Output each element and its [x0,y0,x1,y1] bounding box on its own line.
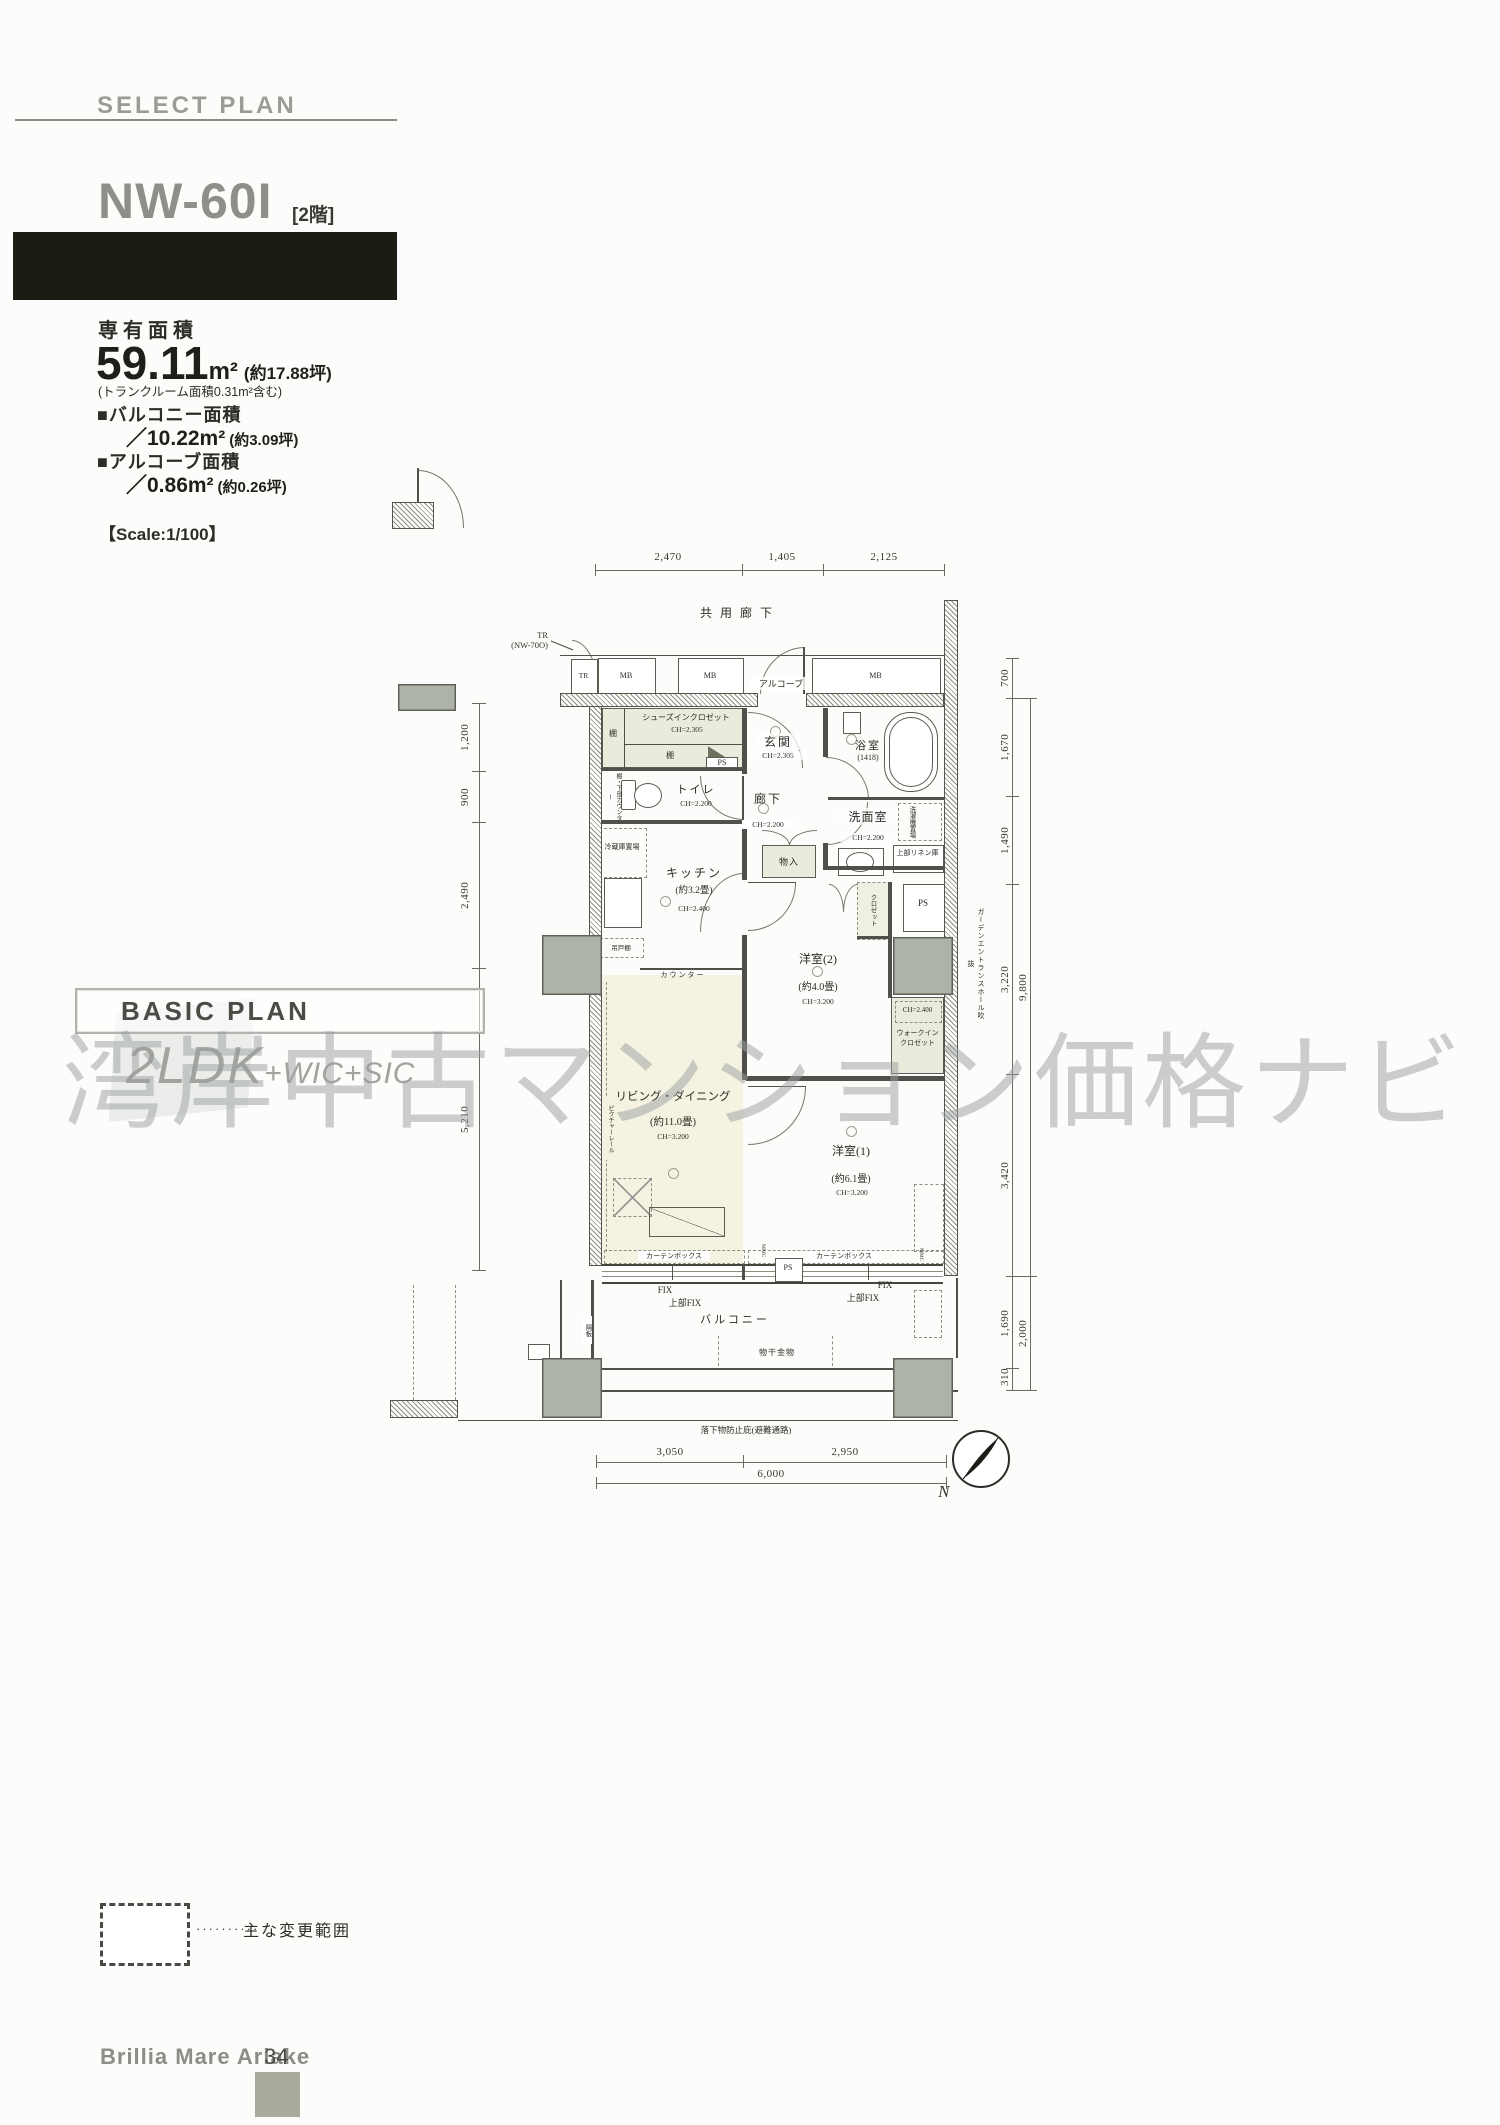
dim-right-1490: 1,490 [999,817,1011,863]
dim-top-3: 2,125 [849,551,919,563]
dim-tick-left-5 [472,1270,486,1271]
dim-bottom-1: 3,050 [635,1446,705,1458]
monohoshi-label: 物干金物 [748,1347,806,1358]
canopy-label: 落下物防止庇(避難通路) [688,1424,804,1436]
west2-label: 洋室(2) [786,950,850,967]
pillar-left [542,935,602,995]
hall-ch: CH=2.200 [742,820,794,829]
closet-bifold-2 [843,884,858,912]
dim-right-1670: 1,670 [999,724,1011,770]
dim-line-top [595,570,945,571]
wall-sic-toilet [602,768,743,771]
escape-hatch [914,1290,942,1338]
pillar-right [893,937,953,995]
toilet-label: トイレ [666,781,726,797]
alcove-tsubo: (約0.26坪) [218,479,287,496]
dim-top-2: 1,405 [747,551,817,563]
dim-line-bottom-2 [596,1483,947,1484]
wash-ch: CH=2.200 [840,833,896,842]
dim-tick-bottom-4 [596,1477,597,1489]
neighbor-wall-stub [392,502,434,529]
alcove-number: ／0.86m² [126,474,214,497]
balcony-rail-inner [562,1368,893,1370]
wall-top-left [560,693,758,707]
kitchen-label: キッチン [652,864,736,881]
wall-v-bath-1 [823,708,828,757]
ps-label: PS [903,898,943,908]
wall-toilet-kitchen [602,820,743,824]
west2-door-leaf [748,882,796,883]
west1-ch: CH=3.200 [822,1188,882,1197]
wall-v-bath-2 [823,843,828,867]
legend-label: 主な変更範囲 [243,1917,351,1941]
floor-tag: [2階] [292,200,334,227]
wall-v-w2-top [742,862,747,880]
stove-counter [604,878,642,928]
dim-line-bottom-1 [596,1462,947,1463]
trunk-room-note: (トランクルーム面積0.31m²含む) [98,381,282,400]
closet-bifold-1 [829,884,844,912]
legend-change-box [100,1903,190,1966]
evac-dash-1 [413,1285,414,1400]
west2-size: (約4.0畳) [784,978,852,993]
dim-tick-top-2 [742,564,743,576]
pillar-bottom-left [542,1358,602,1418]
washer-label: 洗濯機置場 [906,805,916,839]
wall-closet-bottom [857,936,892,939]
fix-upper-label-1: 上部FIX [658,1296,712,1309]
dim-tick-left-1 [472,703,486,704]
sic-ch: CH=2.305 [652,725,722,734]
kicker-underline [15,119,397,121]
evac-dash-2 [455,1285,456,1400]
sic-shelf-bottom: 棚 [650,750,690,761]
west1-desk-space [914,1184,944,1252]
bath-counter [843,712,861,734]
lamp-west2 [812,966,823,977]
dim-tick-bottom-1 [596,1455,597,1468]
balcony-number: ／10.22m² [126,427,225,450]
balcony-label: バルコニー [700,1311,770,1327]
monoire-label: 物入 [762,855,816,868]
bath-size: (1418) [848,753,888,762]
balcony-right-edge [956,1278,958,1358]
mmc-label-1: MMC [760,1242,766,1260]
site-watermark: 湾岸中古マンション価格ナビ [62,998,1498,1149]
dim-tick-bottom-3 [946,1455,947,1468]
dim-left-3: 2,490 [459,872,471,918]
wash-label: 洗面室 [838,808,898,825]
dim-tick-right-6 [1006,1276,1037,1277]
dim-bottom-2: 2,950 [810,1446,880,1458]
dim-tick-top-1 [595,564,596,576]
dim-line-left [479,703,480,1270]
sic-divider-h [624,744,743,745]
kitchen-ch: CH=2.400 [654,904,734,913]
dim-bottom-3: 6,000 [736,1468,806,1480]
unit-name: NW-60I [98,172,272,230]
dim-tick-right-3 [1006,796,1019,797]
north-label: N [934,1482,954,1502]
wall-v-entry-1 [742,708,747,774]
sic-shelf-left: 棚 [603,728,623,739]
dim-right-2000: 2,000 [1017,1310,1029,1356]
monohoshi-mark-1 [718,1336,719,1366]
bath-label: 浴室 [846,737,890,753]
dim-right-3220: 3,220 [999,956,1011,1002]
window-mullion-3 [868,1264,869,1280]
wall-closet-right [888,882,892,998]
meter-box-2-label: MB [678,671,742,680]
meter-box-3-label: MB [812,671,939,680]
fix-upper-label-2: 上部FIX [836,1291,890,1304]
wall-wash-bottom [823,866,944,870]
west2-door-arc [748,883,796,931]
brochure-page: { "header": { "kicker": "SELECT PLAN", "… [0,0,1500,2125]
scale-note: 【Scale:1/100】 [99,520,226,545]
dim-right-310: 310 [999,1360,1011,1394]
curtain-label-west1: カーテンボックス [808,1251,880,1261]
closet-label: クロゼット [867,887,877,933]
curtain-label-living: カーテンボックス [638,1251,710,1261]
north-arrow-icon [954,1432,1008,1486]
monoire-door-2 [789,830,817,846]
common-corridor-label: 共用廊下 [660,604,820,621]
trunk-ref-line1: TR [537,630,548,640]
dim-tick-right-4 [1006,884,1019,885]
trunk-room-label: TR [571,671,596,680]
dim-left-2: 900 [459,778,471,816]
neighbor-pillar [398,684,456,711]
mb-row-topline [560,655,944,656]
monohoshi-mark-2 [832,1336,833,1366]
trunk-ref-line2: (NW-70O) [511,640,548,650]
balcony-tsubo: (約3.09坪) [229,432,298,449]
pillar-bottom-right [893,1358,953,1418]
north-compass-icon [952,1430,1010,1488]
sic-label: シューズインクロゼット [630,712,742,723]
hanging-label: 吊戸棚 [602,942,640,952]
linen-label: 上部リネン庫 [894,848,941,858]
dim-right-700: 700 [999,660,1011,696]
dim-tick-left-2 [472,771,486,772]
black-bar [13,232,397,300]
tv-space [613,1178,652,1217]
wall-bath-wash [828,797,944,800]
wall-top-right [806,693,944,707]
trunk-ref-leader [551,641,574,651]
lamp-living [668,1168,679,1179]
trunk-ref-label: TR (NW-70O) [468,630,548,650]
dim-tick-top-3 [823,564,824,576]
page-kicker: SELECT PLAN [97,92,297,120]
fridge-space [599,828,647,878]
dim-tick-left-3 [472,822,486,823]
toilet-door-leaf [742,776,744,820]
mmc-label-2: MMC [918,1246,924,1264]
footer-page-number: 34 [264,2044,288,2070]
dim-tick-bottom-2 [743,1455,744,1468]
hall-label: 廊下 [746,790,790,807]
washer-space [898,803,942,841]
genkan-ch: CH=2.305 [750,751,806,760]
divider-label: 隔板 [582,1316,592,1344]
ps-entry-label: PS [706,757,738,768]
monoire-door-1 [762,830,790,846]
genkan-label: 玄関 [756,733,800,750]
alcove-label: アルコーブ [750,677,812,690]
sic-divider-v [624,708,625,768]
counter-label: カウンター [640,970,726,980]
dim-right-3420: 3,420 [999,1152,1011,1198]
toilet-ch: CH=2.200 [662,799,730,808]
fix-label-1: FIX [648,1285,682,1295]
dim-tick-top-4 [944,564,945,576]
dim-right-1690: 1,690 [999,1300,1011,1346]
west1-size: (約6.1畳) [816,1170,886,1185]
toilet-counter-note: 棚・下部カウンター [605,772,623,822]
dim-tick-right-2 [1006,698,1037,699]
alcove-area-value: ／0.86m²(約0.26坪) [126,469,287,499]
dim-tick-right-1 [1006,658,1019,659]
dim-left-1: 1,200 [459,714,471,760]
fridge-label: 冷蔵庫置場 [602,843,642,852]
dim-top-1: 2,470 [633,551,703,563]
window-mullion-2 [742,1264,745,1280]
window-mullion-1 [672,1264,673,1280]
bath-door-arc [826,757,869,800]
ps-box [903,884,945,932]
fix-label-2: FIX [868,1280,902,1290]
bathtub-inner [889,717,933,787]
dim-tick-left-4 [472,968,486,969]
sofa [649,1207,725,1237]
canopy-wall-stub [390,1400,458,1418]
footer-square [255,2072,300,2117]
kitchen-size: (約3.2畳) [650,882,738,896]
ps-window-label: PS [775,1263,801,1272]
meter-box-1-label: MB [598,671,654,680]
canopy-line [458,1420,958,1421]
toilet-bowl [634,783,662,808]
